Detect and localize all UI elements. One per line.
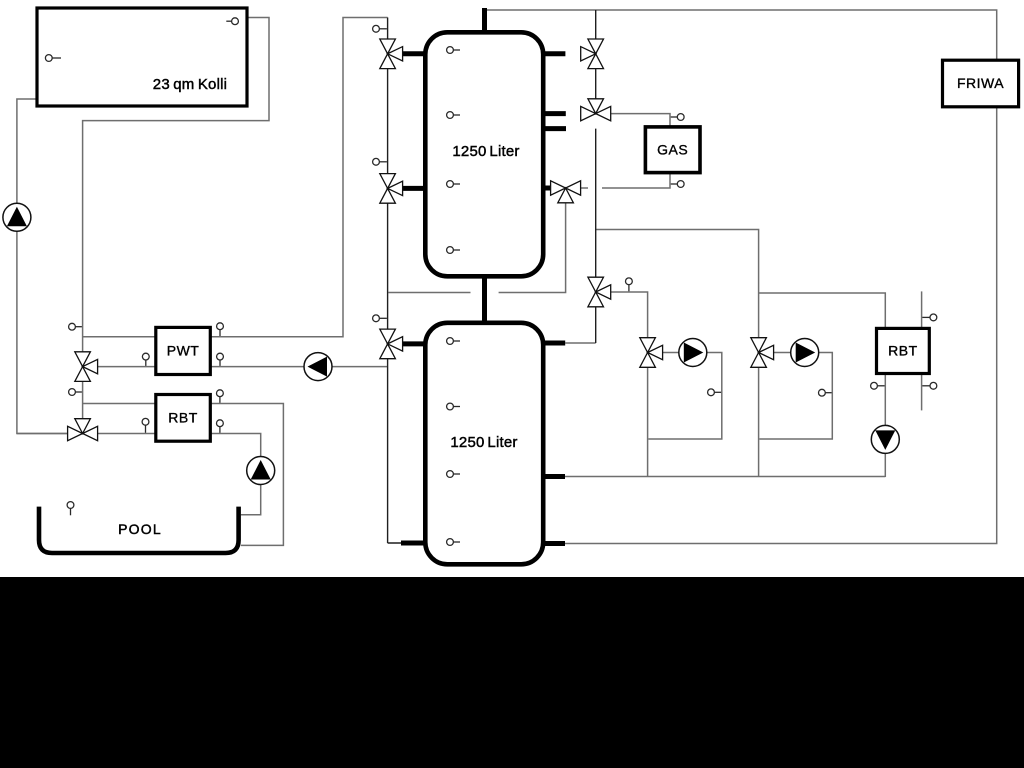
svg-text:FRIWA: FRIWA	[957, 75, 1004, 91]
svg-text:RBT: RBT	[888, 342, 918, 358]
svg-text:POOL: POOL	[118, 521, 162, 537]
svg-text:GAS: GAS	[657, 141, 688, 157]
svg-text:PWT: PWT	[167, 342, 200, 358]
svg-text:RBT: RBT	[168, 409, 198, 425]
svg-text:1250 Liter: 1250 Liter	[450, 434, 517, 451]
svg-text:23 qm Kolli: 23 qm Kolli	[153, 76, 227, 93]
svg-text:1250 Liter: 1250 Liter	[452, 143, 519, 160]
